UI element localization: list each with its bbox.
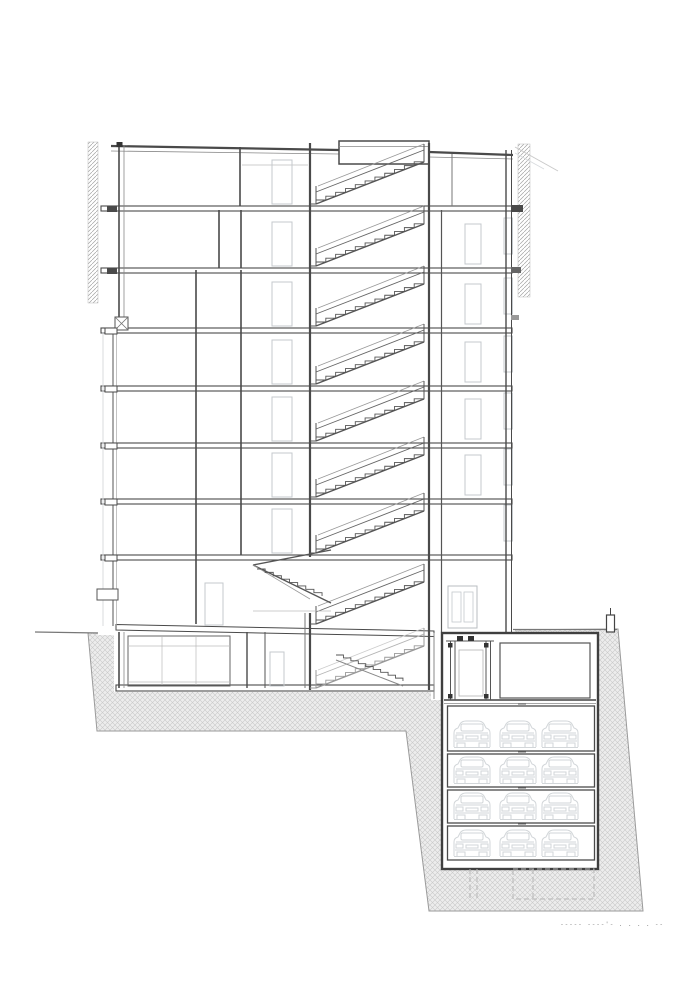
- balcony-slab-nose: [105, 499, 117, 505]
- balcony-slab-nose: [105, 443, 117, 449]
- party-wall-left: [88, 142, 98, 303]
- party-wall-right: [518, 144, 530, 297]
- party-wall-tie: [511, 267, 521, 273]
- building-cross-section-drawing: ----- ----'- . . . . --: [0, 0, 700, 991]
- slab-end-block: [107, 206, 117, 212]
- party-wall-tie: [511, 205, 523, 212]
- scale-caption: ----- ----'- . . . . --: [560, 920, 664, 928]
- floor-slab: [101, 206, 512, 211]
- balcony-slab-nose: [105, 555, 117, 561]
- slab-end-block: [107, 268, 117, 274]
- floor-slab: [101, 555, 512, 560]
- roof-edge-block: [117, 142, 123, 147]
- floor-slab: [101, 386, 512, 391]
- shaft-anchor: [484, 643, 489, 648]
- floor-slab: [101, 443, 512, 448]
- floor-slab: [101, 268, 512, 273]
- shaft-anchor: [468, 636, 474, 641]
- shaft-anchor: [484, 694, 489, 699]
- balcony-slab-nose: [105, 328, 117, 334]
- bollard-icon: [607, 615, 615, 632]
- drawing-sheet: ----- ----'- . . . . --: [0, 0, 700, 991]
- shaft-anchor: [457, 636, 463, 641]
- floor-slab: [101, 499, 512, 504]
- floor-slab: [101, 328, 512, 333]
- balcony-slab-nose: [105, 386, 117, 392]
- shaft-anchor: [448, 643, 453, 648]
- party-wall-tie: [511, 315, 519, 320]
- grade-line-left: [35, 632, 98, 633]
- entrance-step: [97, 589, 118, 600]
- shaft-anchor: [448, 694, 453, 699]
- stair-bulkhead: [339, 141, 429, 164]
